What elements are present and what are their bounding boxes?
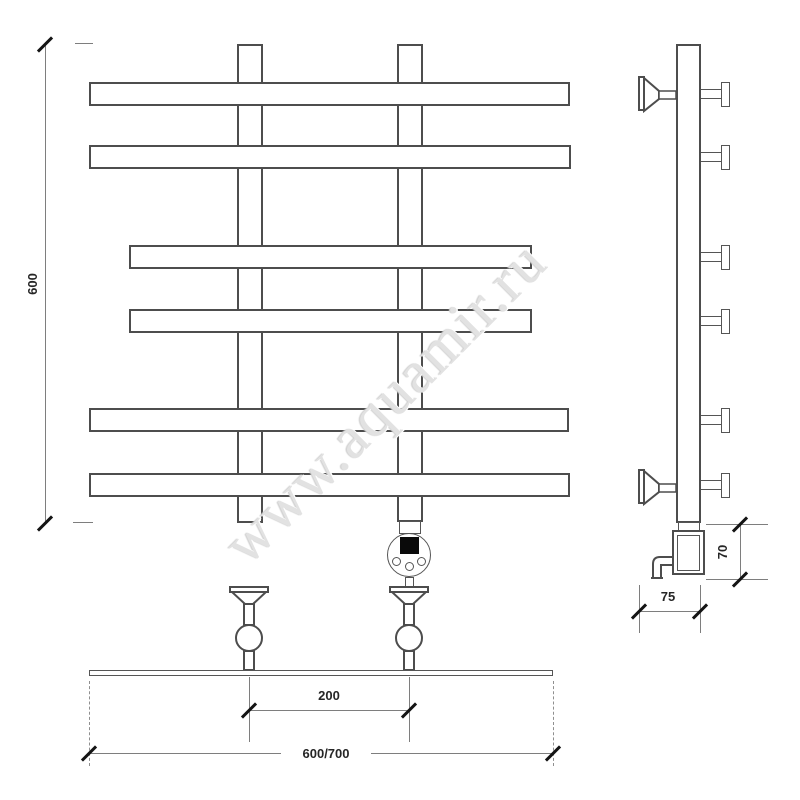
side-rung-5-cap [721, 408, 730, 433]
dim-spacing-line [249, 710, 409, 711]
side-rung-1-cap [721, 82, 730, 107]
thermostat-button-left [392, 557, 401, 566]
dim-height-ext-bottom [73, 522, 93, 523]
dim-depth-line [639, 611, 700, 612]
side-rung-2-cap [721, 145, 730, 170]
wall-bracket-top [638, 75, 676, 113]
dim-height-label: 600 [26, 264, 40, 304]
front-left-post [237, 44, 263, 523]
mount-valve-left [229, 586, 269, 671]
towel-bar-2 [89, 145, 571, 169]
towel-bar-5 [89, 408, 569, 432]
thermostat-display [400, 537, 419, 554]
towel-bar-1 [89, 82, 570, 106]
dim-height-line [45, 44, 46, 523]
side-rung-6-stub [701, 480, 722, 490]
heating-element-box-inner [677, 535, 700, 571]
side-rung-4-stub [701, 316, 722, 326]
side-rung-1-stub [701, 89, 722, 99]
side-rung-3-cap [721, 245, 730, 270]
side-rung-5-stub [701, 415, 722, 425]
mount-valve-right [389, 586, 429, 671]
dim-depth-label: 75 [638, 590, 698, 604]
thermostat-button-right [417, 557, 426, 566]
dim-element-line [740, 524, 741, 579]
towel-bar-6 [89, 473, 570, 497]
side-rung-2-stub [701, 152, 722, 162]
dim-height-ext-top [75, 43, 93, 44]
dim-element-label: 70 [716, 532, 730, 572]
side-post [676, 44, 701, 523]
wall-bracket-bottom [638, 468, 676, 506]
side-rung-4-cap [721, 309, 730, 334]
towel-bar-4 [129, 309, 532, 333]
side-rung-6-cap [721, 473, 730, 498]
towel-bar-3 [129, 245, 532, 269]
dim-spacing-label: 200 [299, 689, 359, 703]
thermostat-button-middle [405, 562, 414, 571]
front-right-post [397, 44, 423, 522]
side-rung-3-stub [701, 252, 722, 262]
watermark: www.aquamir.ru [145, 162, 626, 643]
mounting-baseline [89, 670, 553, 676]
dim-width-label: 600/700 [281, 747, 371, 761]
technical-drawing-canvas: 600 200 600/700 [0, 0, 800, 800]
power-cable-elbow [650, 553, 676, 582]
